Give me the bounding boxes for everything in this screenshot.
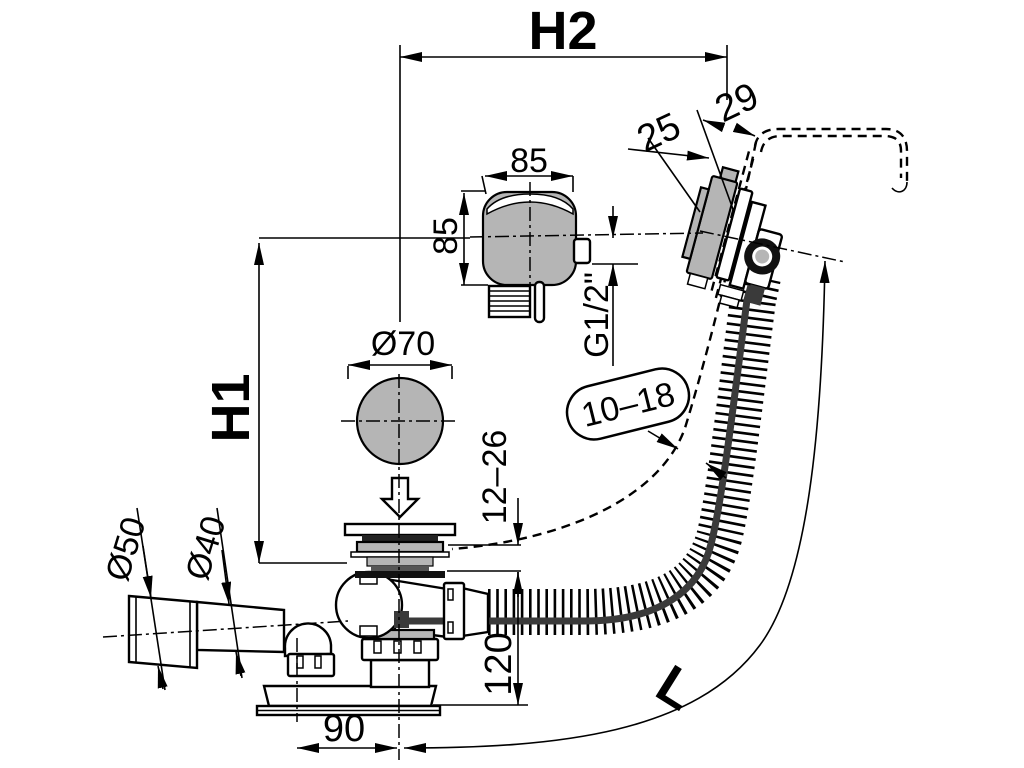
base-flange xyxy=(264,686,436,706)
control-head xyxy=(483,192,590,322)
dim-thread-g12: G1/2" xyxy=(578,272,616,358)
diagram-canvas: 10–18 H2 H1 L 85 85 25 29 G1/2" Ø70 12–2… xyxy=(0,0,1024,768)
dim-head-width-85: 85 xyxy=(510,142,548,180)
dim-knob-diameter-70: Ø70 xyxy=(371,325,435,363)
dim-outlet-50: Ø50 xyxy=(98,513,153,586)
overflow-unit xyxy=(673,142,801,314)
dim-line-gap-left xyxy=(648,431,678,449)
dim-offset-90: 90 xyxy=(323,708,365,750)
technical-drawing-bath-drain-set: 10–18 H2 H1 L 85 85 25 29 G1/2" Ø70 12–2… xyxy=(0,0,1024,768)
dim-head-height-85: 85 xyxy=(427,217,465,255)
dim-h1: H1 xyxy=(201,373,261,442)
dim-overflow-25: 25 xyxy=(631,105,687,161)
wall-gap-bubble: 10–18 xyxy=(561,363,694,445)
dim-overflow-29: 29 xyxy=(709,75,765,131)
bath-rim-dashed xyxy=(755,129,907,192)
dim-length-l: L xyxy=(646,654,706,722)
head-bellows xyxy=(489,286,530,317)
outlet-pipe xyxy=(197,602,284,652)
dim-plug-range-12-26: 12–26 xyxy=(476,430,514,525)
drain-plug xyxy=(345,524,455,578)
side-outlet-elbow xyxy=(285,623,331,656)
hose-adapter xyxy=(462,588,488,636)
hose-nut xyxy=(444,583,464,639)
dim-line-29-left xyxy=(703,120,717,125)
press-arrow-icon xyxy=(382,478,418,517)
dim-height-120: 120 xyxy=(478,632,520,695)
cable-nipple xyxy=(574,239,590,263)
pull-rod xyxy=(535,282,544,322)
waste-body xyxy=(371,660,429,687)
corrugated-hose xyxy=(480,277,758,621)
waste-assembly xyxy=(129,524,488,715)
dim-line-29-right xyxy=(741,130,755,136)
dim-h2: H2 xyxy=(528,1,597,61)
